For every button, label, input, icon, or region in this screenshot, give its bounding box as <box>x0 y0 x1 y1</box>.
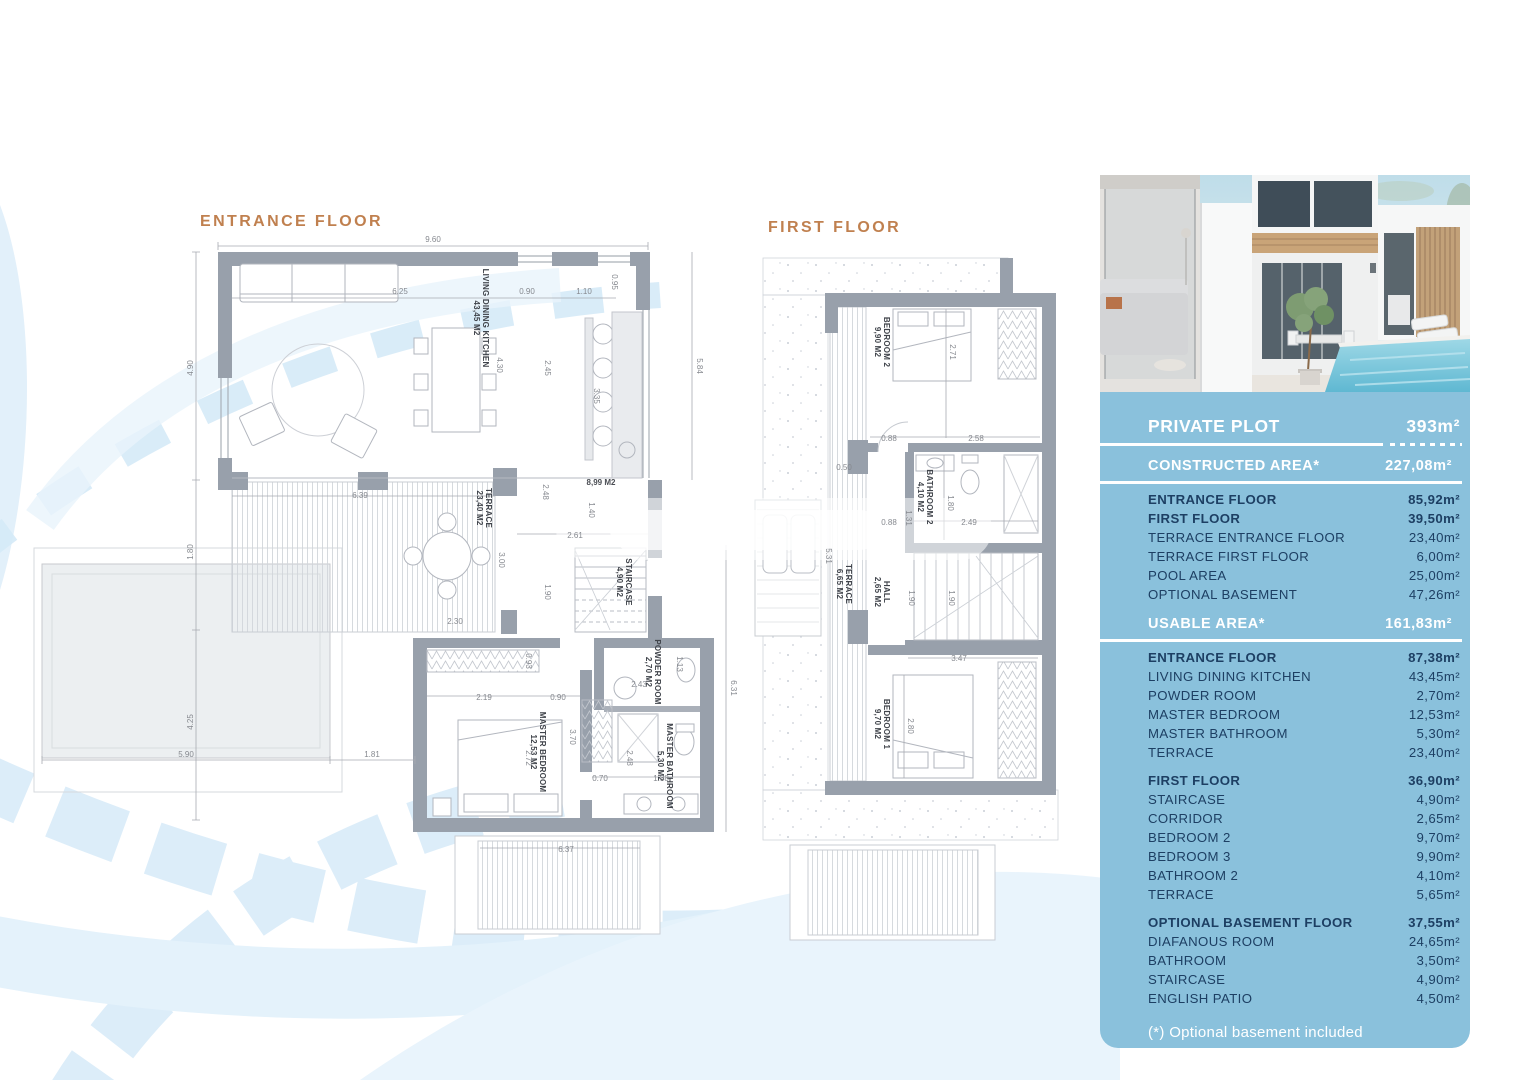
dimension-label: 5.90 <box>178 750 194 759</box>
area-value: 39,50m² <box>1408 511 1460 526</box>
area-summary-panel: PRIVATE PLOT 393m² CONSTRUCTED AREA*227,… <box>1100 175 1470 1048</box>
area-value: 5,30m² <box>1417 726 1460 741</box>
living-furniture <box>239 264 642 478</box>
area-value: 23,40m² <box>1409 745 1460 760</box>
dimension-label: 3.70 <box>568 729 577 745</box>
area-row: TERRACE FIRST FLOOR6,00m² <box>1100 547 1470 566</box>
area-annotation: 8,99 M2 <box>587 478 616 487</box>
area-label: BEDROOM 3 <box>1148 849 1231 864</box>
plot-label: PRIVATE PLOT <box>1148 416 1280 437</box>
room-area-label: 2,65 M2 <box>873 577 882 608</box>
area-label: OPTIONAL BASEMENT FLOOR <box>1148 915 1353 930</box>
divider-solid <box>1100 443 1383 446</box>
area-label: TERRACE ENTRANCE FLOOR <box>1148 530 1345 545</box>
area-label: ENGLISH PATIO <box>1148 991 1252 1006</box>
area-value: 227,08m² <box>1385 458 1452 474</box>
section-header-row: CONSTRUCTED AREA*227,08m² <box>1100 456 1462 484</box>
area-value: 43,45m² <box>1409 669 1460 684</box>
area-value: 85,92m² <box>1408 492 1460 507</box>
plot-divider <box>1100 443 1462 446</box>
plot-row: PRIVATE PLOT 393m² <box>1100 414 1470 441</box>
dimension-label: 0.88 <box>881 518 897 527</box>
dimension-label: 1.80 <box>946 495 955 511</box>
area-row: FIRST FLOOR39,50m² <box>1100 509 1470 528</box>
area-row: MASTER BEDROOM12,53m² <box>1100 705 1470 724</box>
area-value: 4,90m² <box>1417 792 1460 807</box>
dimension-label: 4.30 <box>495 357 504 373</box>
area-value: 36,90m² <box>1408 773 1460 788</box>
area-row: TERRACE5,65m² <box>1100 885 1470 904</box>
dimension-label: 2.45 <box>543 360 552 376</box>
area-row: ENTRANCE FLOOR87,38m² <box>1100 648 1470 667</box>
room-area-label: 9,70 M2 <box>873 709 882 740</box>
area-value: 47,26m² <box>1409 587 1460 602</box>
area-value: 24,65m² <box>1409 934 1460 949</box>
dimension-label: 0.93 <box>524 653 533 669</box>
villa-photo <box>1100 175 1470 392</box>
area-value: 23,40m² <box>1409 530 1460 545</box>
area-label: MASTER BATHROOM <box>1148 726 1288 741</box>
area-value: 9,90m² <box>1417 849 1460 864</box>
room-area-label: 6,65 M2 <box>835 569 844 600</box>
area-value: 4,50m² <box>1417 991 1460 1006</box>
room-label: BEDROOM 2 <box>882 317 891 368</box>
dimension-label: 2.80 <box>906 718 915 734</box>
first-floor-plan <box>755 258 1058 940</box>
dimension-label: 1.90 <box>907 590 916 606</box>
area-row: OPTIONAL BASEMENT47,26m² <box>1100 585 1470 604</box>
dimension-label: 3.00 <box>497 552 506 568</box>
area-summary-body: PRIVATE PLOT 393m² CONSTRUCTED AREA*227,… <box>1100 392 1470 1041</box>
room-label: LIVING DINING KITCHEN <box>481 269 490 368</box>
area-value: 6,00m² <box>1417 549 1460 564</box>
area-label: CORRIDOR <box>1148 811 1223 826</box>
dimension-label: 0.90 <box>519 287 535 296</box>
dimension-label: 2.48 <box>625 750 634 766</box>
dimension-label: 1.40 <box>587 502 596 518</box>
dimension-label: 1.13 <box>675 656 684 672</box>
dimension-label: 2.58 <box>968 434 984 443</box>
area-value: 87,38m² <box>1408 650 1460 665</box>
dimension-label: 6.25 <box>392 287 408 296</box>
area-label: ENTRANCE FLOOR <box>1148 492 1277 507</box>
dimension-label: 6.39 <box>352 491 368 500</box>
room-label: BATHROOM 2 <box>925 469 934 525</box>
area-value: 9,70m² <box>1417 830 1460 845</box>
area-row: POWDER ROOM2,70m² <box>1100 686 1470 705</box>
area-value: 5,65m² <box>1417 887 1460 902</box>
dimension-label: 3.35 <box>592 388 601 404</box>
footnote: (*) Optional basement included <box>1100 1008 1470 1041</box>
dimension-label: 2.72 <box>524 750 533 766</box>
area-row: MASTER BATHROOM5,30m² <box>1100 724 1470 743</box>
room-label: MASTER BATHROOM <box>665 723 674 809</box>
area-row: BEDROOM 29,70m² <box>1100 828 1470 847</box>
area-value: 37,55m² <box>1408 915 1460 930</box>
dimension-label: 1.10 <box>576 287 592 296</box>
dimension-label: 6.37 <box>558 845 574 854</box>
dimension-label: 0.90 <box>550 693 566 702</box>
area-label: POWDER ROOM <box>1148 688 1256 703</box>
area-row: POOL AREA25,00m² <box>1100 566 1470 585</box>
dimension-label: 2.19 <box>476 693 492 702</box>
room-label: STAIRCASE <box>624 558 633 606</box>
dimension-label: 1.90 <box>947 590 956 606</box>
staircase-entrance <box>575 548 646 632</box>
room-label: POWDER ROOM <box>653 639 662 704</box>
area-label: POOL AREA <box>1148 568 1227 583</box>
area-value: 4,10m² <box>1417 868 1460 883</box>
room-area-label: 4,10 M2 <box>916 482 925 513</box>
area-label: USABLE AREA* <box>1148 616 1265 632</box>
dimension-label: 5.84 <box>695 358 704 374</box>
area-label: FIRST FLOOR <box>1148 511 1240 526</box>
dimension-label: 2.43 <box>631 680 647 689</box>
area-value: 25,00m² <box>1409 568 1460 583</box>
area-row: TERRACE ENTRANCE FLOOR23,40m² <box>1100 528 1470 547</box>
room-area-label: 43,45 M2 <box>472 301 481 336</box>
area-row: STAIRCASE4,90m² <box>1100 790 1470 809</box>
area-label: BEDROOM 2 <box>1148 830 1231 845</box>
room-label: BEDROOM 1 <box>882 699 891 750</box>
area-label: FIRST FLOOR <box>1148 773 1240 788</box>
area-label: DIAFANOUS ROOM <box>1148 934 1275 949</box>
plot-value: 393m² <box>1406 416 1460 437</box>
floor-plans-drawing: LIVING DINING KITCHEN43,45 M2 TERRACE23,… <box>0 0 1100 1080</box>
area-row: BEDROOM 39,90m² <box>1100 847 1470 866</box>
room-area-label: 23,40 M2 <box>475 491 484 526</box>
dimension-label: 6.31 <box>729 680 738 696</box>
dimension-label: 2.61 <box>567 531 583 540</box>
room-label: MASTER BEDROOM <box>538 712 547 793</box>
area-label: CONSTRUCTED AREA* <box>1148 458 1320 474</box>
area-row: FIRST FLOOR36,90m² <box>1100 771 1470 790</box>
area-row: ENTRANCE FLOOR85,92m² <box>1100 490 1470 509</box>
room-label: TERRACE <box>484 488 493 529</box>
dimension-label: 2.71 <box>948 344 957 360</box>
area-row: LIVING DINING KITCHEN43,45m² <box>1100 667 1470 686</box>
area-row: ENGLISH PATIO4,50m² <box>1100 989 1470 1008</box>
area-label: MASTER BEDROOM <box>1148 707 1280 722</box>
villa-photo-illustration <box>1100 175 1470 392</box>
area-row: DIAFANOUS ROOM24,65m² <box>1100 932 1470 951</box>
area-label: STAIRCASE <box>1148 792 1225 807</box>
area-row: OPTIONAL BASEMENT FLOOR37,55m² <box>1100 913 1470 932</box>
room-area-label: 4,90 M2 <box>615 567 624 598</box>
bedroom2-furniture <box>893 309 1036 381</box>
staircase-first <box>914 553 1038 640</box>
area-row: BATHROOM 24,10m² <box>1100 866 1470 885</box>
area-value: 161,83m² <box>1385 616 1452 632</box>
dimension-label: 4.25 <box>186 714 195 730</box>
room-label: HALL <box>882 581 891 603</box>
dimension-label: 1.81 <box>364 750 380 759</box>
area-row: TERRACE23,40m² <box>1100 743 1470 762</box>
dimension-label: 3.47 <box>951 654 967 663</box>
dimension-label: 1.80 <box>186 544 195 560</box>
area-value: 12,53m² <box>1409 707 1460 722</box>
brochure-page: ENTRANCE FLOOR FIRST FLOOR <box>0 0 1527 1080</box>
area-value: 3,50m² <box>1417 953 1460 968</box>
area-rows: CONSTRUCTED AREA*227,08m²ENTRANCE FLOOR8… <box>1100 456 1470 1008</box>
dimension-label: 0.50 <box>836 463 852 472</box>
room-area-label: 9,90 M2 <box>873 327 882 358</box>
dimension-label: 0.95 <box>610 274 619 290</box>
dimension-label: 0.70 <box>592 774 608 783</box>
dimension-label: 5.31 <box>824 548 833 564</box>
area-label: TERRACE FIRST FLOOR <box>1148 549 1309 564</box>
area-value: 2,65m² <box>1417 811 1460 826</box>
dimension-label: 2.30 <box>447 617 463 626</box>
area-label: LIVING DINING KITCHEN <box>1148 669 1311 684</box>
area-label: BATHROOM <box>1148 953 1226 968</box>
dimension-label: 4.90 <box>186 360 195 376</box>
dimension-label: 0.88 <box>881 434 897 443</box>
area-value: 4,90m² <box>1417 972 1460 987</box>
dimension-label: 1.31 <box>904 510 913 526</box>
area-value: 2,70m² <box>1417 688 1460 703</box>
area-row: CORRIDOR2,65m² <box>1100 809 1470 828</box>
section-header-row: USABLE AREA*161,83m² <box>1100 614 1462 642</box>
room-label: TERRACE <box>844 564 853 605</box>
area-label: TERRACE <box>1148 887 1214 902</box>
area-label: BATHROOM 2 <box>1148 868 1238 883</box>
dimension-label: 2.48 <box>541 484 550 500</box>
area-label: ENTRANCE FLOOR <box>1148 650 1277 665</box>
area-row: BATHROOM3,50m² <box>1100 951 1470 970</box>
dimension-label: 1.88 <box>653 774 669 783</box>
area-label: TERRACE <box>1148 745 1214 760</box>
area-row: STAIRCASE4,90m² <box>1100 970 1470 989</box>
area-label: STAIRCASE <box>1148 972 1225 987</box>
dimension-label: 1.90 <box>543 584 552 600</box>
divider-dots <box>1390 443 1462 446</box>
dimension-label: 2.49 <box>961 518 977 527</box>
dimension-label: 9.60 <box>425 235 441 244</box>
area-label: OPTIONAL BASEMENT <box>1148 587 1297 602</box>
